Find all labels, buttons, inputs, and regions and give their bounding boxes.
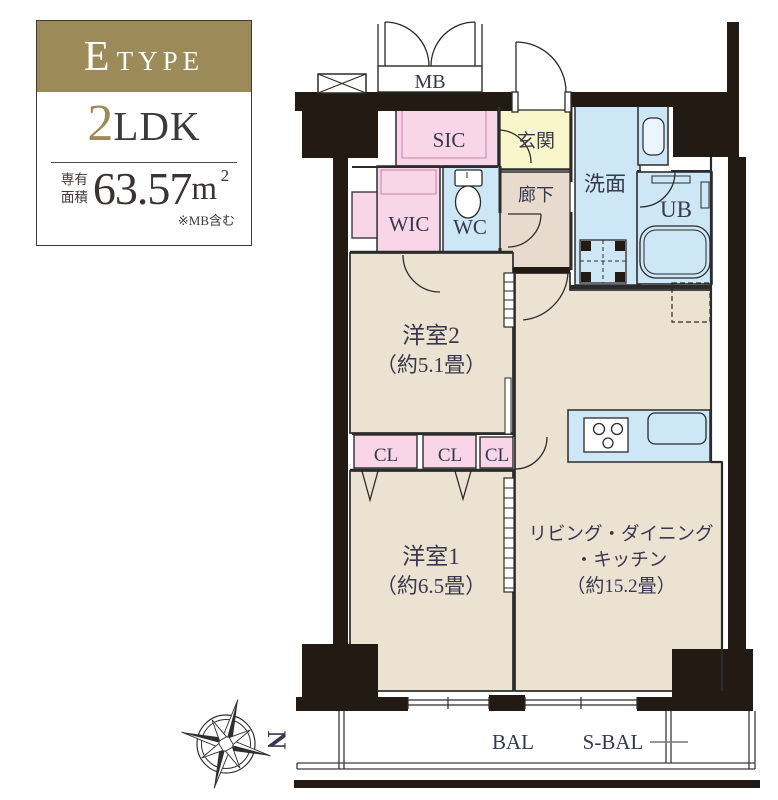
- bath-label: UB: [660, 197, 692, 222]
- bedroom2-label: 洋室2: [402, 323, 460, 348]
- wic-label: WIC: [389, 212, 430, 236]
- ldk-label-line3: （約15.2畳）: [566, 575, 675, 597]
- closet2-label: CL: [438, 445, 462, 466]
- toilet-icon: [455, 170, 482, 218]
- bedroom1-label: 洋室1: [402, 544, 460, 569]
- entrance-door-icon: [516, 42, 566, 92]
- wic-shelf: [352, 192, 377, 238]
- kitchen-counter-icon: [568, 410, 710, 462]
- washroom-label: 洗面: [584, 172, 626, 196]
- pipe-space-icon: [318, 74, 366, 93]
- entrance-label: 玄関: [517, 130, 555, 152]
- service-balcony-label: S-BAL: [583, 730, 644, 754]
- washing-machine-pan-icon: [580, 240, 626, 283]
- door-post: [565, 92, 571, 112]
- toilet-label: WC: [453, 215, 487, 239]
- closet1-label: CL: [374, 445, 398, 466]
- bedroom1-size-label: （約6.5畳）: [376, 574, 486, 598]
- door-post: [512, 92, 518, 112]
- room-ldk: [515, 273, 722, 691]
- washbasin-icon: [643, 118, 664, 155]
- room-wic: [377, 166, 440, 252]
- ldk-label-line1: リビング・ダイニング: [528, 524, 713, 545]
- compass-north-label: N: [262, 731, 291, 750]
- closet3-label: CL: [485, 445, 509, 466]
- bedroom2-size-label: （約5.1畳）: [376, 353, 486, 377]
- floorplan-drawing: MB SIC 玄関 廊下 洗面 UB WIC WC 洋室2 （約5.1畳） CL…: [0, 0, 778, 800]
- meter-box-doors-icon: [378, 22, 482, 66]
- floorplan-page: E TYPE 2 LDK 専有 面積 63.57 m2 ※MB含む: [0, 0, 778, 800]
- sic-label: SIC: [433, 128, 466, 152]
- ldk-label-line2: ・キッチン: [575, 551, 668, 571]
- balcony-label: BAL: [492, 730, 534, 754]
- mb-label: MB: [414, 71, 445, 93]
- hallway-label: 廊下: [518, 185, 554, 205]
